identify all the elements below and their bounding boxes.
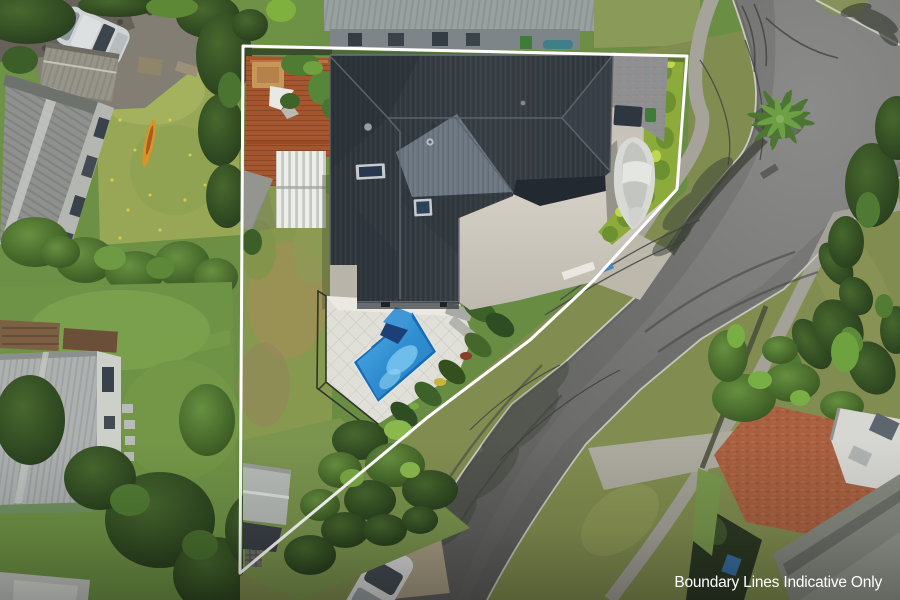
svg-text:Boundary Lines Indicative Only: Boundary Lines Indicative Only (674, 574, 882, 591)
